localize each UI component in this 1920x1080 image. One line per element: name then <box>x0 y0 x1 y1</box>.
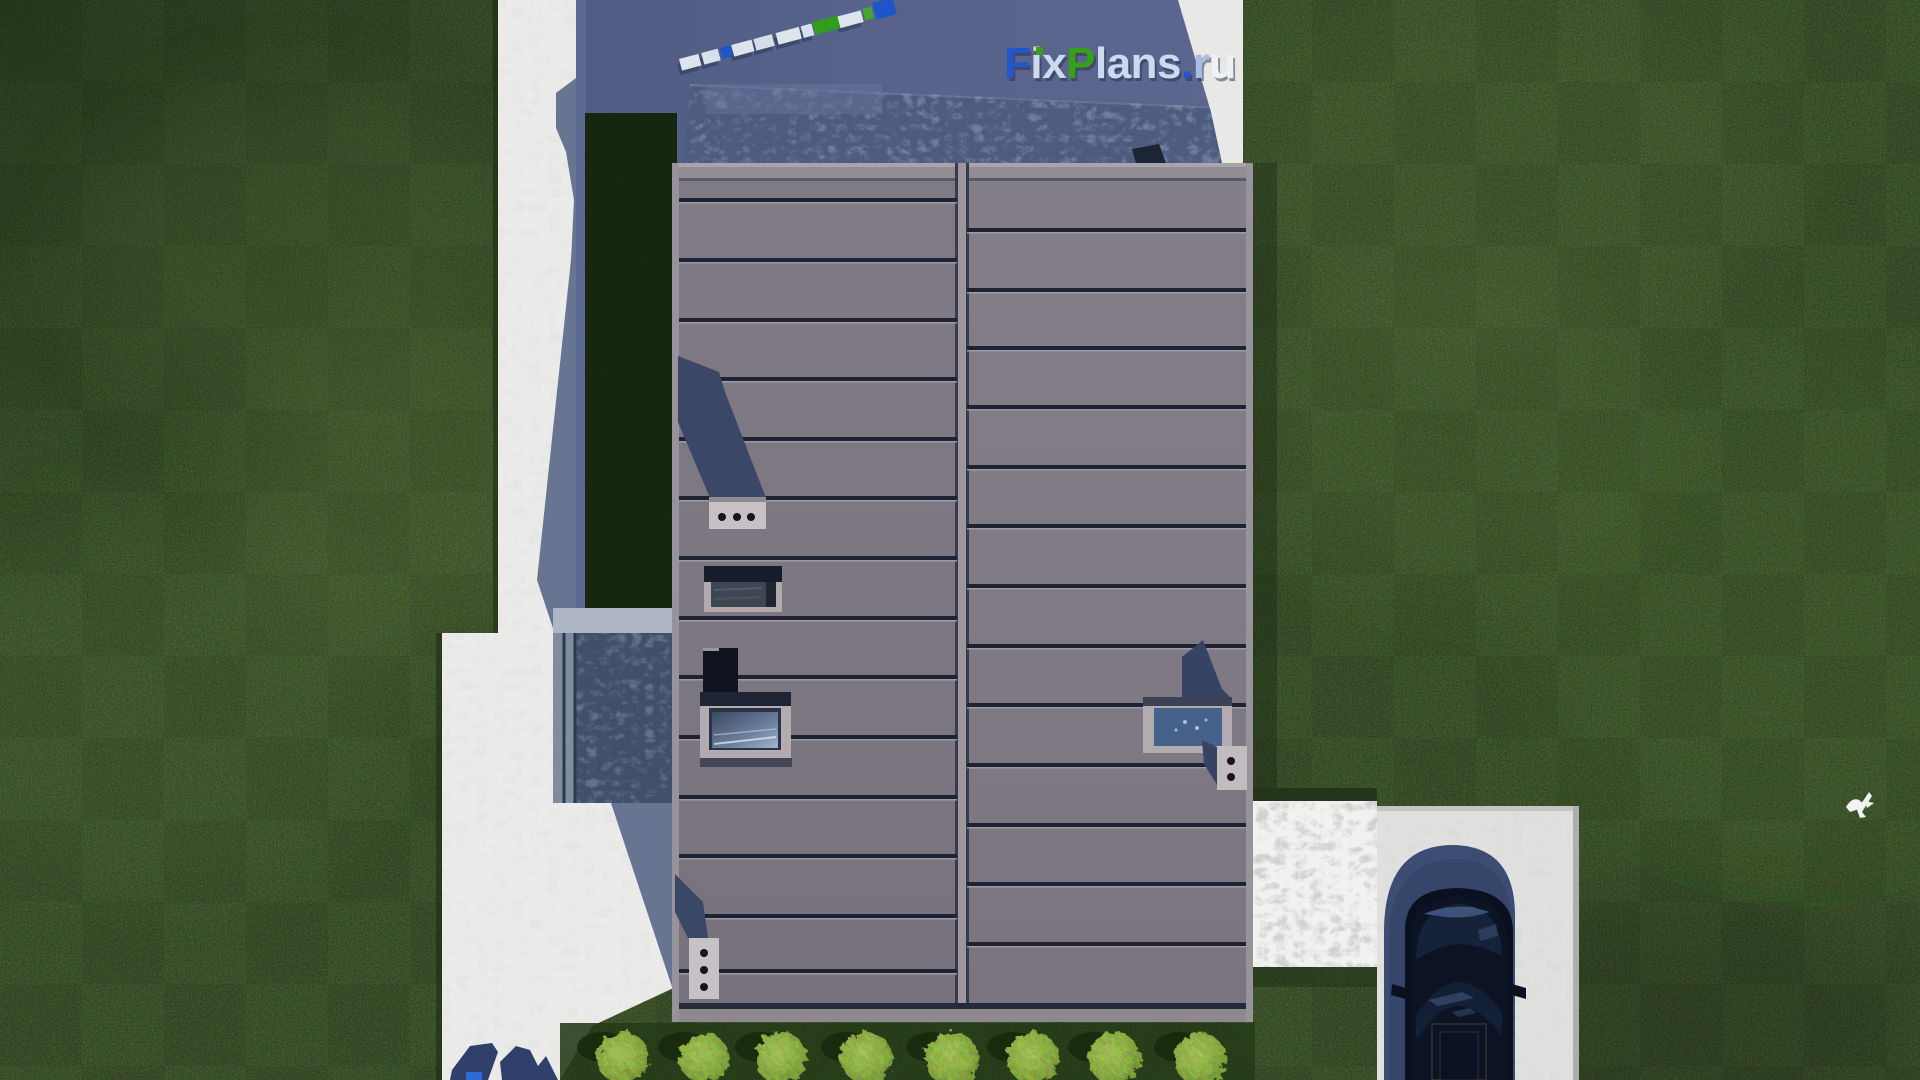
svg-text:FixPlans.ru: FixPlans.ru <box>1004 39 1236 88</box>
